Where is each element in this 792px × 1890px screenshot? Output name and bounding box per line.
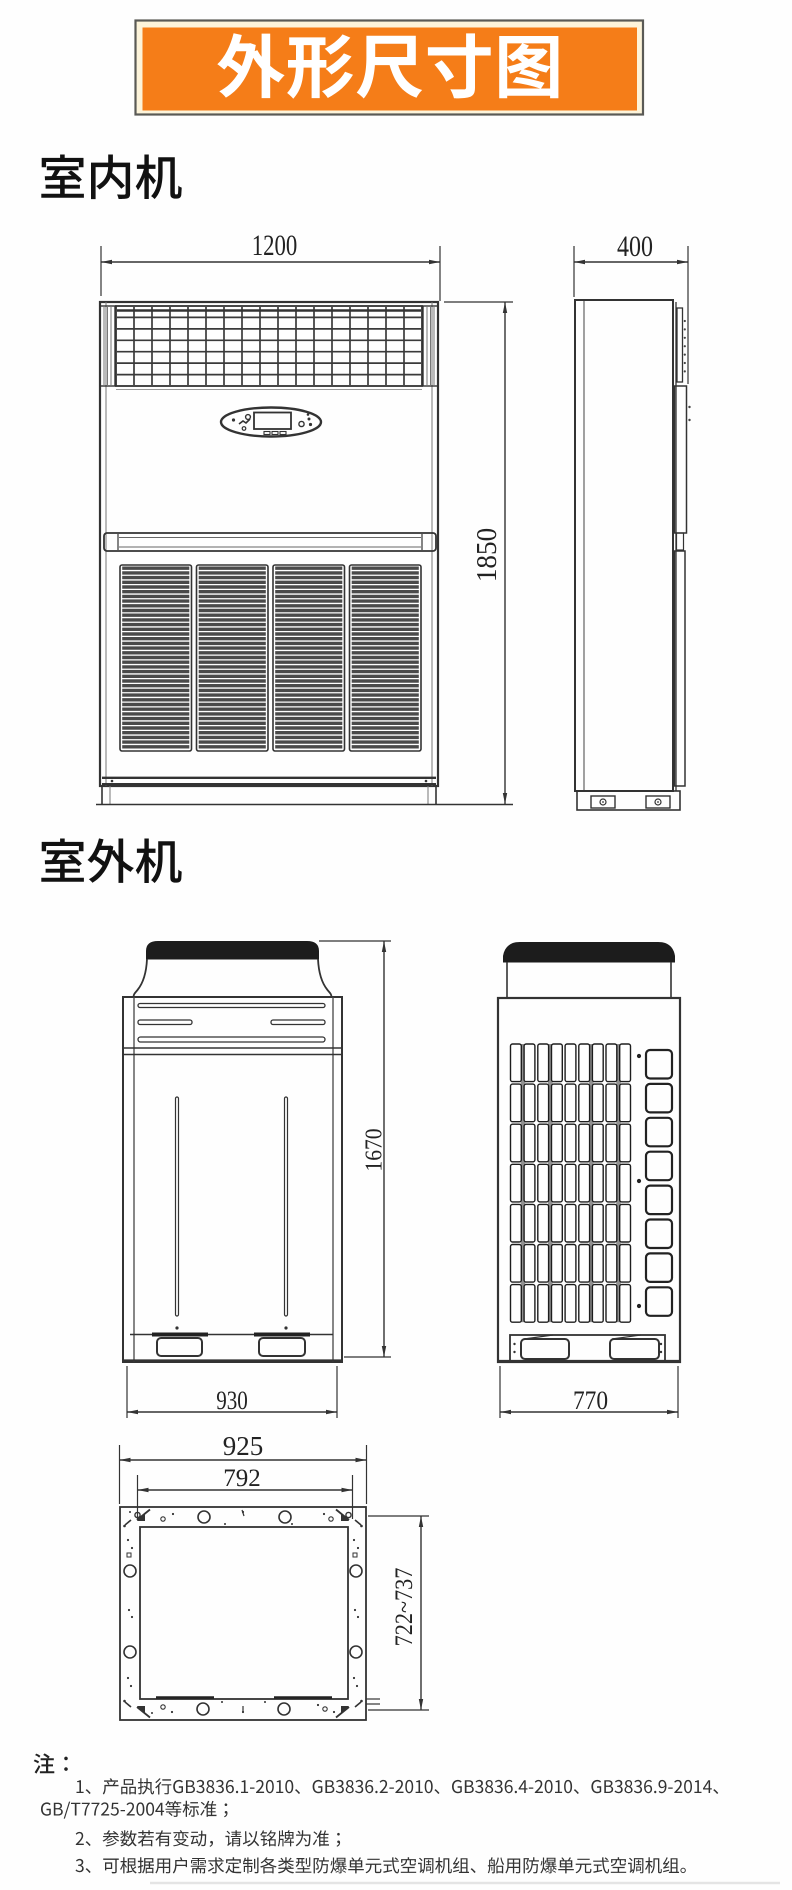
svg-text:722~737: 722~737 <box>391 1568 419 1647</box>
svg-text:930: 930 <box>216 1387 248 1416</box>
svg-text:1850: 1850 <box>471 528 502 582</box>
svg-text:1670: 1670 <box>360 1128 386 1171</box>
svg-text:1200: 1200 <box>252 228 298 262</box>
svg-text:925: 925 <box>223 1431 264 1461</box>
svg-text:770: 770 <box>573 1387 608 1415</box>
svg-text:400: 400 <box>617 229 653 262</box>
svg-text:792: 792 <box>223 1465 261 1492</box>
